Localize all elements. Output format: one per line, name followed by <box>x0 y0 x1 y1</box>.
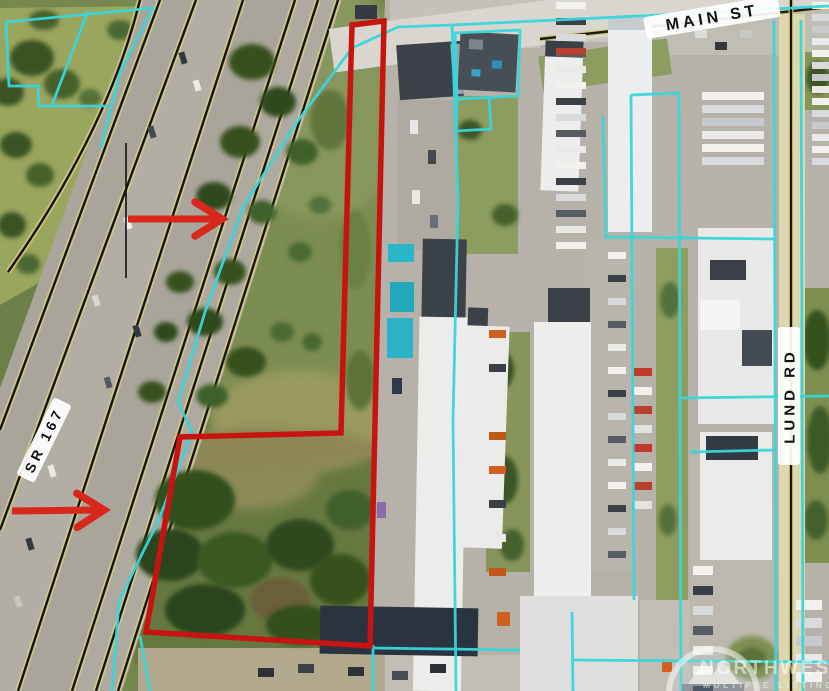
road-label-lund-rd: LUND RD <box>778 327 800 465</box>
map-canvas: MAIN STLUND RDSR 167 NORTHWEST MULTIPLE … <box>0 0 829 691</box>
aerial-map-image: MAIN STLUND RDSR 167 NORTHWEST MULTIPLE … <box>0 0 829 691</box>
watermark-brand: NORTHWEST <box>700 658 829 679</box>
road-label-text: LUND RD <box>781 348 798 444</box>
watermark-tagline: MULTIPLE LISTING SE <box>703 680 829 690</box>
